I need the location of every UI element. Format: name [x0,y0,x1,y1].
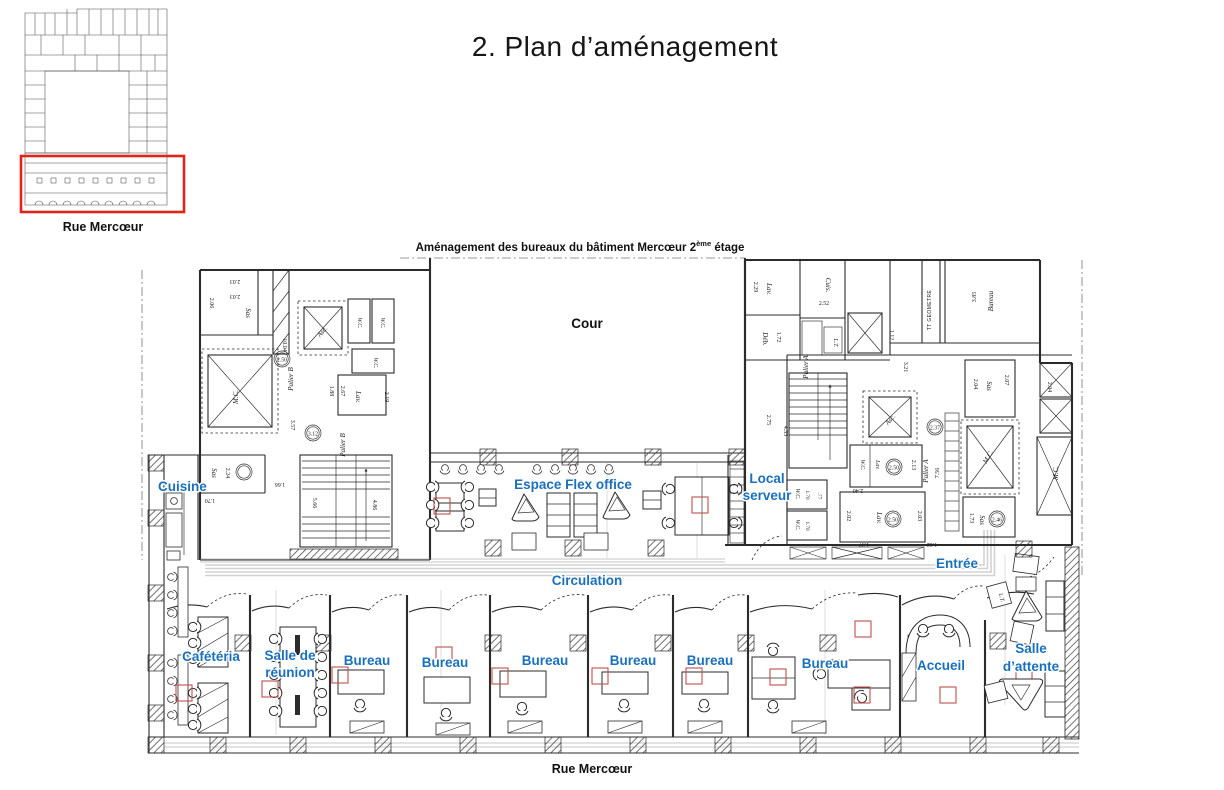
overview-street-label: Rue Mercœur [15,220,191,234]
plan-annotation: 2.03 [230,278,241,284]
plan-annotation: 2.75 [765,415,771,426]
plan-annotation: 3.21 [902,362,908,373]
label-salle-attente-1: Salle [1015,641,1047,656]
plan-annotation: Lav. [875,511,883,524]
boundary-lines [142,258,1082,577]
page-title: 2. Plan d’aménagement [400,31,850,63]
plan-annotation: 2.67 [339,386,345,397]
plan-annotation: Asc. [315,324,330,339]
plan-annotation: 2.13 [910,460,916,471]
plan-annotation: Déb. [761,331,769,346]
plan-annotation: Sas [210,468,218,478]
plan-caption: Aménagement des bureaux du bâtiment Merc… [380,239,780,254]
label-local-serveur-1: Local [749,471,784,486]
label-bureau-3: Bureau [522,653,569,668]
kitchen-area [148,455,200,560]
label-circulation: Circulation [552,573,623,588]
plan-annotation: 5.66 [311,498,317,509]
plan-annotation: 3.12 [308,432,318,438]
plan-annotation: M.C. [232,390,240,405]
plan-annotation: Lav. [874,459,880,470]
plan-annotation: 1.70 [205,497,216,503]
plan-annotation: Sas [978,515,986,525]
plan-annotation: Palier A [802,355,810,380]
plan-annotation: 3.85 [972,292,978,303]
plan-annotation: 2.24 [224,468,230,479]
plan-annotation: Palier B [339,433,347,458]
plan-annotation: 2.04 [972,379,978,390]
left-wing-block [200,270,430,560]
plan-annotation: 7.56 [935,468,941,479]
plan-annotation: Palier A [922,459,930,484]
plan-annotation: W.C. [794,488,800,499]
label-flex-office: Espace Flex office [514,477,632,492]
plan-annotation: 1.72 [775,332,781,343]
plan-annotation: Sas [244,308,252,318]
label-bureau-6: Bureau [802,656,849,671]
plan-annotation: 2.02 [845,511,851,522]
label-entree: Entrée [936,556,979,571]
plan-annotation: 1.70 [804,521,810,530]
label-salle-reunion-2: réunion [265,665,315,680]
plan-annotation: 1.62 [927,541,938,547]
plan-annotation: Palier B [287,367,295,392]
plan-annotation: W.C. [372,357,378,368]
flex-office-area [200,465,742,562]
label-bureau-2: Bureau [422,655,469,670]
plan-annotation: 2.19 [383,392,389,403]
plan-annotation: 1.97 [859,541,870,547]
plan-annotation: 1.70 [804,490,810,499]
plan-annotation: 2.40 [853,487,864,493]
plan-annotation: W.C. [859,459,865,470]
caption-tail: étage [711,242,744,254]
plan-annotation: W.C. [356,317,362,328]
plan-annotation: TT GEOMETRE [927,290,933,331]
plan-annotation: Bureau [987,290,995,311]
caption-sup: ème [696,239,711,248]
plan-annotation: 2.46 [992,518,1002,524]
label-bureau-5: Bureau [687,653,734,668]
overview-highlight-rectangle [21,156,184,212]
label-accueil: Accueil [917,658,965,673]
plan-annotation: .77 [816,493,822,500]
label-bureau-1: Bureau [344,653,391,668]
plan-annotation: 2.07 [1003,375,1009,386]
plan-annotation: 4.86 [371,500,377,511]
plan-annotation: 2.37 [930,426,940,432]
plan-annotation: 1.12 [888,330,894,341]
plan-annotation: 1.66 [275,481,286,487]
label-cafeteria: Cafétéria [182,649,240,664]
overview-building-outline [25,9,167,205]
label-salle-attente-2: d’attente [1003,659,1060,674]
office-furniture [332,621,890,735]
plan-annotation: 4.33 [782,426,788,437]
label-salle-reunion-1: Salle de [264,648,316,663]
plan-annotation: 2.50 [889,466,899,472]
plan-annotation: W.C. [794,519,800,530]
courtyard-label: Cour [571,316,603,331]
overview-map [15,5,200,219]
plan-annotation: Asc. [883,412,898,427]
plan-annotation: Lav. [354,390,362,403]
plan-annotation: 10.04 [281,338,287,352]
plan-annotation: 1.73 [968,513,974,524]
plan-annotation: 1.88 [328,386,334,397]
plan-annotation: M.C. [1052,466,1060,481]
label-local-serveur-2: serveur [743,488,793,503]
plan-annotation: 2.06 [208,298,214,309]
label-bureau-4: Bureau [610,653,657,668]
entrance-area [1016,541,1032,557]
caption-main: Aménagement des bureaux du bâtiment Merc… [416,242,697,254]
street-label: Rue Mercœur [482,762,702,776]
plan-annotation: 2.52 [819,301,829,307]
plan-annotation: Sas [985,381,993,391]
plan-annotation: 2.50 [888,518,898,524]
plan-annotation: 2.03 [230,293,241,299]
right-wing-block [725,260,1072,580]
plan-annotation: Lav. [765,282,773,295]
label-cuisine: Cuisine [158,479,207,494]
plan-annotation: Cuis. [824,278,832,293]
plan-annotation: 2.50 [277,358,287,364]
plan-annotation: 2.29 [752,282,758,293]
plan-annotation: 3.57 [289,420,295,431]
floor-plan: Cour [140,255,1110,762]
plan-annotation: M.C. [981,449,996,466]
plan-annotation: 2.03 [916,511,922,522]
plan-annotation: 2.04 [1046,382,1052,393]
plan-annotation: L.T. [832,338,838,348]
plan-annotation: W.C. [379,317,385,328]
